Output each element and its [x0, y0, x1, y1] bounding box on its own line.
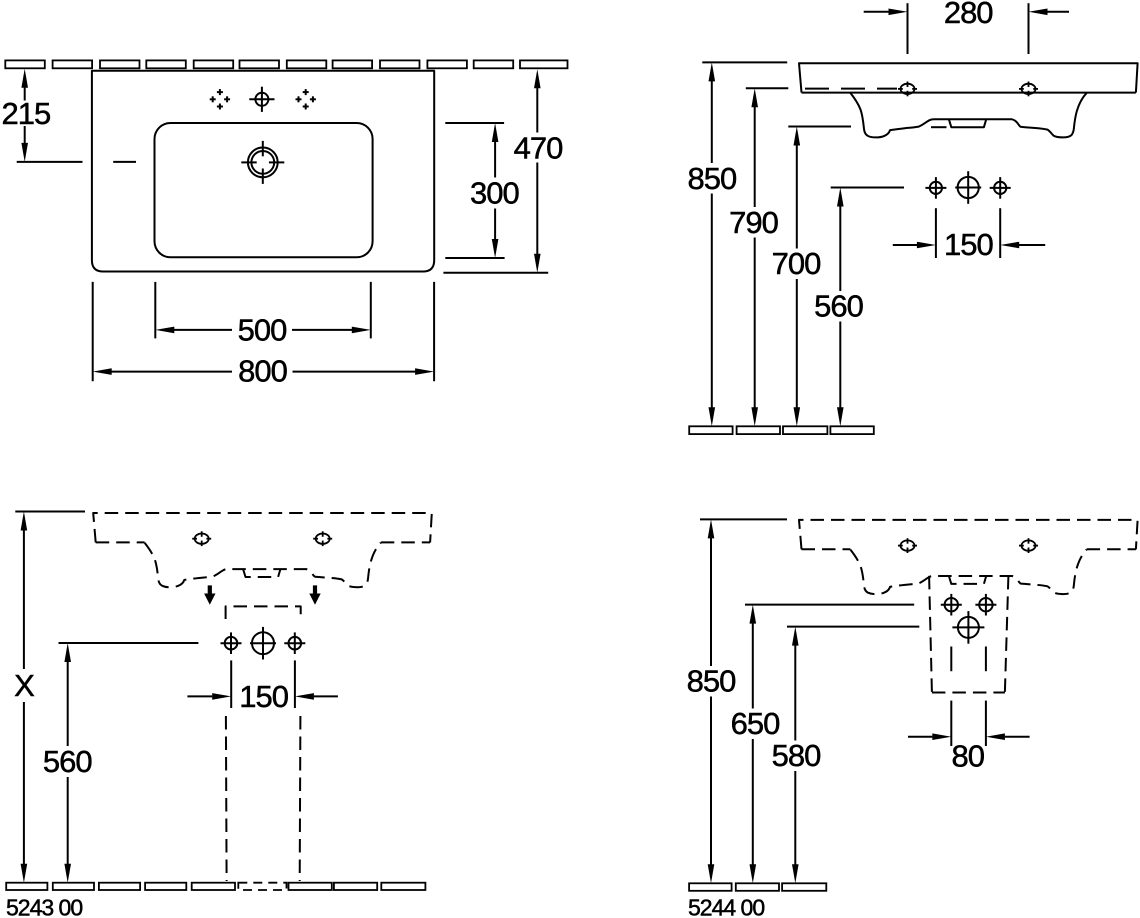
- svg-text:580: 580: [772, 738, 821, 773]
- svg-text:470: 470: [514, 130, 563, 165]
- svg-text:850: 850: [688, 161, 737, 196]
- svg-text:280: 280: [944, 0, 993, 30]
- svg-text:5243 00: 5243 00: [6, 894, 82, 918]
- svg-text:300: 300: [470, 176, 519, 211]
- svg-text:150: 150: [944, 227, 993, 262]
- svg-text:560: 560: [814, 289, 863, 324]
- svg-text:150: 150: [239, 679, 288, 714]
- svg-text:80: 80: [952, 738, 985, 773]
- svg-text:650: 650: [731, 706, 780, 741]
- svg-text:X: X: [14, 668, 35, 703]
- svg-text:5244 00: 5244 00: [688, 894, 764, 918]
- svg-text:850: 850: [687, 664, 736, 699]
- svg-text:215: 215: [2, 96, 51, 131]
- svg-text:700: 700: [772, 246, 821, 281]
- svg-text:560: 560: [43, 744, 92, 779]
- svg-text:800: 800: [238, 354, 287, 389]
- svg-text:500: 500: [238, 312, 287, 347]
- svg-text:790: 790: [729, 205, 778, 240]
